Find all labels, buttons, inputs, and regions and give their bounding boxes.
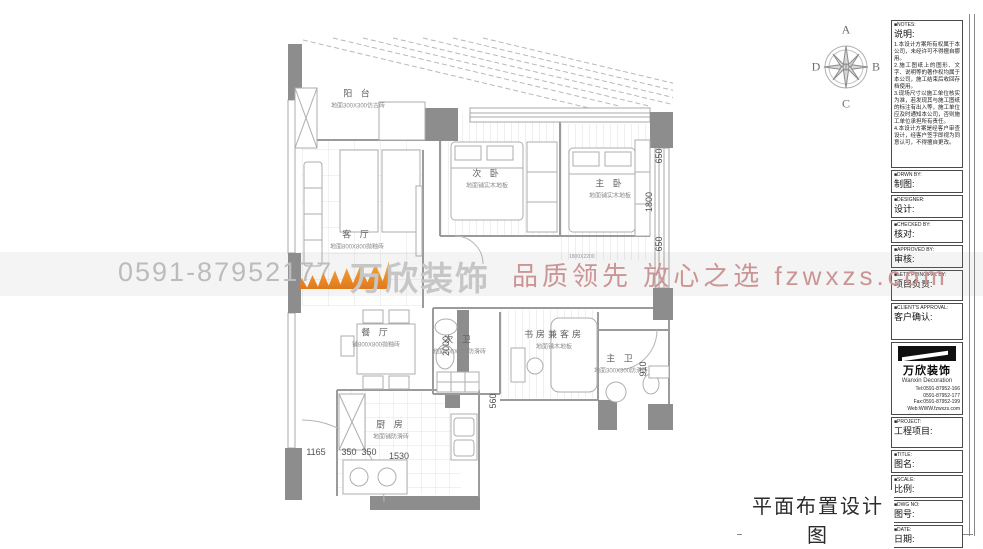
sheet-frame-right — [969, 14, 975, 536]
dim-2000: 2000 — [441, 336, 451, 356]
company-section: 万欣装饰 Wanxin Decoration Tel:0591-87952-16… — [891, 342, 963, 415]
bed-size-note: 1800X2200 — [569, 254, 595, 260]
company-web: Web:WWW.fzwxzs.com — [894, 406, 960, 413]
company-name-cn: 万欣装饰 — [894, 362, 960, 378]
field-date: ■DATE: 日期: — [891, 525, 963, 548]
compass-letter-east: B — [872, 60, 880, 75]
field-title: ■TITLE: 图名: — [891, 450, 963, 473]
dim-1800: 1800 — [644, 192, 654, 212]
title-block: ■NOTES: 说明: 1.本设计方案所有权属于本公司，未经许可不得擅自挪用。 … — [891, 20, 963, 549]
dim-560: 560 — [488, 393, 498, 408]
dim-910: 910 — [638, 361, 648, 376]
furniture — [295, 88, 669, 494]
dim-1530: 1530 — [389, 451, 409, 461]
compass-rose: A B C D — [806, 20, 886, 112]
room-label-study: 书房兼客房 地面铺木地板 — [524, 328, 584, 351]
notes-body: 1.本设计方案所有权属于本公司，未经许可不得擅自挪用。 2.施工图纸上的图形、文… — [894, 42, 960, 147]
company-name-en: Wanxin Decoration — [894, 378, 960, 384]
dim-650-bottom: 650 — [654, 236, 664, 251]
field-client-approval: ■CLIENT'S APPROVAL: 客户确认: — [891, 303, 963, 340]
dim-350-a: 350 — [341, 447, 356, 457]
room-label-master-bedroom: 主 卧 地面铺实木地板 — [589, 177, 631, 200]
compass-letter-north: A — [842, 23, 851, 38]
floor-plan: 阳 台 地面300X300仿古砖 次 卧 地面铺实木地板 主 卧 地面铺实木地板… — [283, 36, 703, 518]
field-principal: ■LETR PRINCIPAL BY: 项目负责: — [891, 270, 963, 301]
compass-letter-south: C — [842, 97, 850, 112]
field-dwg-no: ■DWG NO: 图号: — [891, 500, 963, 523]
drawing-sheet: 阳 台 地面300X300仿古砖 次 卧 地面铺实木地板 主 卧 地面铺实木地板… — [0, 0, 983, 549]
room-label-dining: 餐 厅 铺800X800抛釉砖 — [352, 326, 400, 349]
room-label-kitchen: 厨 房 地面铺防滑砖 — [373, 418, 409, 441]
compass-letter-west: D — [812, 60, 821, 75]
logo-swoosh-icon — [902, 351, 948, 361]
field-checked-by: ■CHECKED BY: 核对: — [891, 220, 963, 243]
dim-1165: 1165 — [306, 447, 325, 457]
field-project: ■PROJECT: 工程项目: — [891, 417, 963, 448]
room-label-bedroom2: 次 卧 地面铺实木地板 — [466, 167, 508, 190]
field-designer: ■DESIGNER: 设计: — [891, 195, 963, 218]
dim-350-b: 350 — [361, 447, 376, 457]
wanxin-logo-chip — [898, 346, 956, 361]
field-scale: ■SCALE: 比例: — [891, 475, 963, 498]
notes-label: 说明: — [894, 29, 960, 40]
field-drwn-by: ■DRWN BY: 制图: — [891, 170, 963, 193]
room-label-living: 客 厅 地面800X800抛釉砖 — [330, 228, 384, 251]
dim-650-top: 650 — [654, 148, 664, 163]
field-approved-by: ■APPROVED BY: 审核: — [891, 245, 963, 268]
notes-tag: ■NOTES: — [894, 22, 960, 28]
drawing-title: 平面布置设计图 — [742, 490, 894, 549]
notes-section: ■NOTES: 说明: 1.本设计方案所有权属于本公司，未经许可不得擅自挪用。 … — [891, 20, 963, 168]
room-label-balcony: 阳 台 地面300X300仿古砖 — [331, 87, 385, 110]
